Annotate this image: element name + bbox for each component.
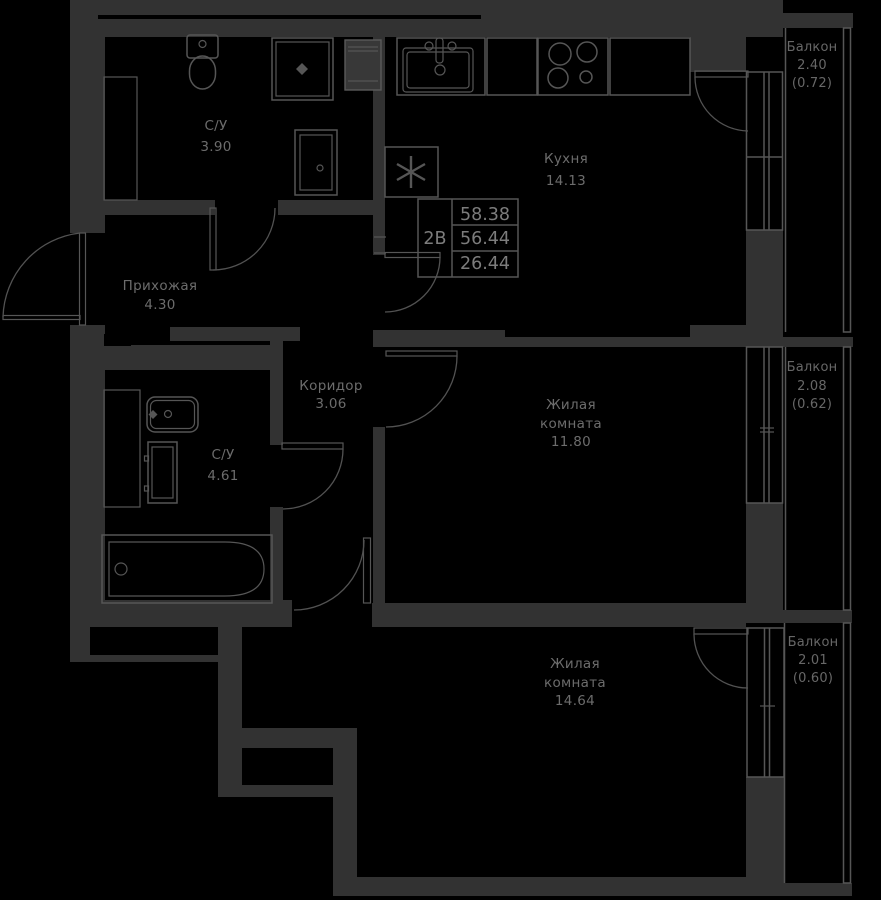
sink-outer-icon: [403, 48, 473, 92]
balcony-glazing: [785, 28, 851, 883]
su2-niche: [104, 390, 140, 507]
hallway-area: 4.30: [144, 297, 175, 313]
wall-shaft-bottom: [242, 785, 333, 797]
living-area-value: 26.44: [460, 254, 510, 274]
su2-fixtures: [102, 390, 272, 603]
wall-corridor-bottom-left: [218, 600, 292, 627]
su1-cabinet-inner: [300, 135, 332, 190]
kitchen-fixtures: [385, 38, 690, 197]
su2-area: 4.61: [207, 468, 238, 484]
su1-area: 3.90: [200, 139, 231, 155]
living1-name-line2: комната: [540, 416, 602, 432]
balcony1-name: Балкон: [787, 40, 838, 55]
bathtub-drain-icon: [115, 563, 127, 575]
shower-drain-icon: [296, 63, 308, 75]
balcony3-coef: (0.60): [793, 671, 833, 686]
wall-su2-right-upper: [270, 341, 283, 445]
wall-kitchen-corner: [690, 37, 746, 72]
wall-living2-left: [333, 748, 357, 896]
balcony1-coef: (0.72): [792, 76, 832, 91]
living1-door-leaf: [386, 351, 457, 356]
kitchen-name: Кухня: [544, 151, 588, 167]
faucet-icon: [436, 38, 443, 63]
balcony1-glazing-right: [844, 28, 851, 332]
su2-door-leaf: [282, 443, 343, 449]
su1-door-arc: [213, 208, 275, 270]
corridor-name: Коридор: [299, 378, 362, 394]
entrance-door-sill: [3, 316, 80, 320]
faucet-tap-icon: [425, 42, 433, 50]
wall-balcony12-divider: [783, 337, 853, 347]
kitchen-stove-unit: [538, 38, 608, 95]
balcony3-glazing-right: [844, 623, 851, 883]
sink-basin-icon: [407, 52, 469, 88]
balcony2-glazing-right: [844, 347, 851, 610]
wall-su2-top: [70, 345, 270, 370]
su1-name: С/У: [204, 118, 227, 134]
wall-balcony23-divider: [740, 610, 852, 623]
faucet-tap-icon: [448, 42, 456, 50]
shaft-hole-bottom-left: [90, 627, 218, 655]
toilet-bowl-icon: [190, 56, 216, 89]
living2-name-line1: Жилая: [550, 656, 600, 672]
wall-living2-top: [372, 603, 746, 627]
hallway-name: Прихожая: [123, 278, 198, 294]
vanity-tap-icon: [165, 411, 172, 418]
living2-window-frame: [747, 628, 784, 777]
living2-balcony-door-arc: [694, 634, 748, 688]
section-divider-line: [98, 15, 481, 19]
wall-su1-bottom-left: [70, 200, 215, 215]
wall-kitchen-living1-mid: [505, 337, 690, 347]
entrance-door-leaf: [80, 233, 86, 325]
kitchen-balcony-door-arc: [695, 77, 748, 131]
toilet-tank-icon: [187, 35, 218, 58]
living1-area: 11.80: [551, 434, 591, 450]
asterisk-icon: [397, 156, 425, 188]
living2-door-leaf: [364, 538, 371, 603]
walls: [70, 0, 853, 896]
reduced-area-value: 56.44: [460, 229, 510, 249]
kitchen-door-arc: [385, 257, 440, 312]
wall-step-horizontal: [218, 728, 357, 748]
kitchen-counter-unit: [610, 38, 690, 95]
stove-burner-icon: [548, 68, 568, 88]
unit-type-label: 2В: [423, 229, 446, 249]
wall-kitchen-right-block: [746, 230, 783, 332]
su1-door-leaf: [210, 208, 216, 270]
wall-living2-right-block: [746, 777, 785, 883]
kitchen-counter-sink-unit: [397, 38, 485, 95]
floor-plan: 2В 58.38 56.44 26.44 С/У 3.90 Кухня 14.1…: [0, 0, 881, 900]
kitchen-door-leaf: [385, 253, 440, 258]
stove-burner-icon: [549, 43, 571, 65]
balcony2-coef: (0.62): [792, 397, 832, 412]
stove-burner-icon: [577, 42, 597, 62]
info-box: 2В 58.38 56.44 26.44: [418, 199, 518, 277]
windows: [694, 71, 784, 777]
living1-name-line1: Жилая: [546, 397, 596, 413]
vanity-drain-icon: [149, 410, 158, 419]
total-area-value: 58.38: [460, 205, 510, 225]
living1-door-arc: [386, 356, 457, 427]
toilet-button-icon: [199, 41, 206, 48]
su1-niche: [104, 77, 137, 200]
su2-name: С/У: [211, 447, 234, 463]
shaft-notch-left: [104, 334, 131, 346]
wall-hallway-bottom: [170, 327, 300, 341]
floor-plan-svg: 2В 58.38 56.44 26.44 С/У 3.90 Кухня 14.1…: [0, 0, 881, 900]
balcony3-name: Балкон: [788, 635, 839, 650]
su1-cabinet-knob: [317, 165, 323, 171]
ventilation-box: [385, 147, 438, 197]
living2-balcony-door-leaf: [694, 628, 748, 634]
corridor-area: 3.06: [315, 396, 346, 412]
balcony-labels: Балкон 2.40 (0.72) Балкон 2.08 (0.62) Ба…: [787, 40, 839, 686]
balcony1-area: 2.40: [797, 58, 827, 73]
balcony3-area: 2.01: [798, 653, 828, 668]
wall-kitchen-living1-left: [373, 330, 505, 347]
wall-step-vertical: [218, 600, 242, 797]
wall-left-upper: [70, 0, 105, 233]
su1-cabinet-icon: [295, 130, 337, 195]
bathtub-inner: [109, 542, 264, 596]
living2-area: 14.64: [555, 693, 595, 709]
balcony2-name: Балкон: [787, 360, 838, 375]
wall-living1-left: [373, 427, 385, 603]
wall-balcony1-top: [783, 13, 853, 28]
su2-cabinet-inner: [152, 447, 173, 498]
living2-door-arc: [294, 540, 364, 610]
living2-name-line2: комната: [544, 675, 606, 691]
su2-door-arc: [283, 449, 343, 509]
wall-balcony3-bottom: [746, 883, 852, 896]
kitchen-counter-unit: [487, 38, 537, 95]
sink-drain-icon: [435, 65, 445, 75]
stove-burner-icon: [580, 71, 592, 83]
balcony2-area: 2.08: [797, 379, 827, 394]
wall-su1-bottom-right: [278, 200, 385, 215]
su1-fixtures: [104, 35, 381, 200]
wall-bottom: [333, 877, 748, 896]
kitchen-area: 14.13: [546, 173, 586, 189]
entrance-door-arc: [3, 233, 80, 317]
wall-living1-right-block: [746, 503, 783, 610]
